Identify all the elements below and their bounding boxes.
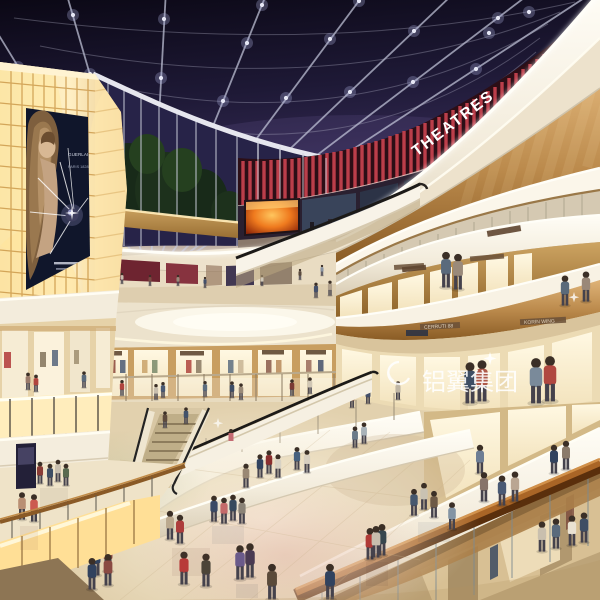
svg-text:GUERLAIN: GUERLAIN	[68, 152, 92, 157]
svg-text:PARIS 1828: PARIS 1828	[68, 165, 89, 169]
svg-text:铝翼集团: 铝翼集团	[422, 369, 518, 396]
